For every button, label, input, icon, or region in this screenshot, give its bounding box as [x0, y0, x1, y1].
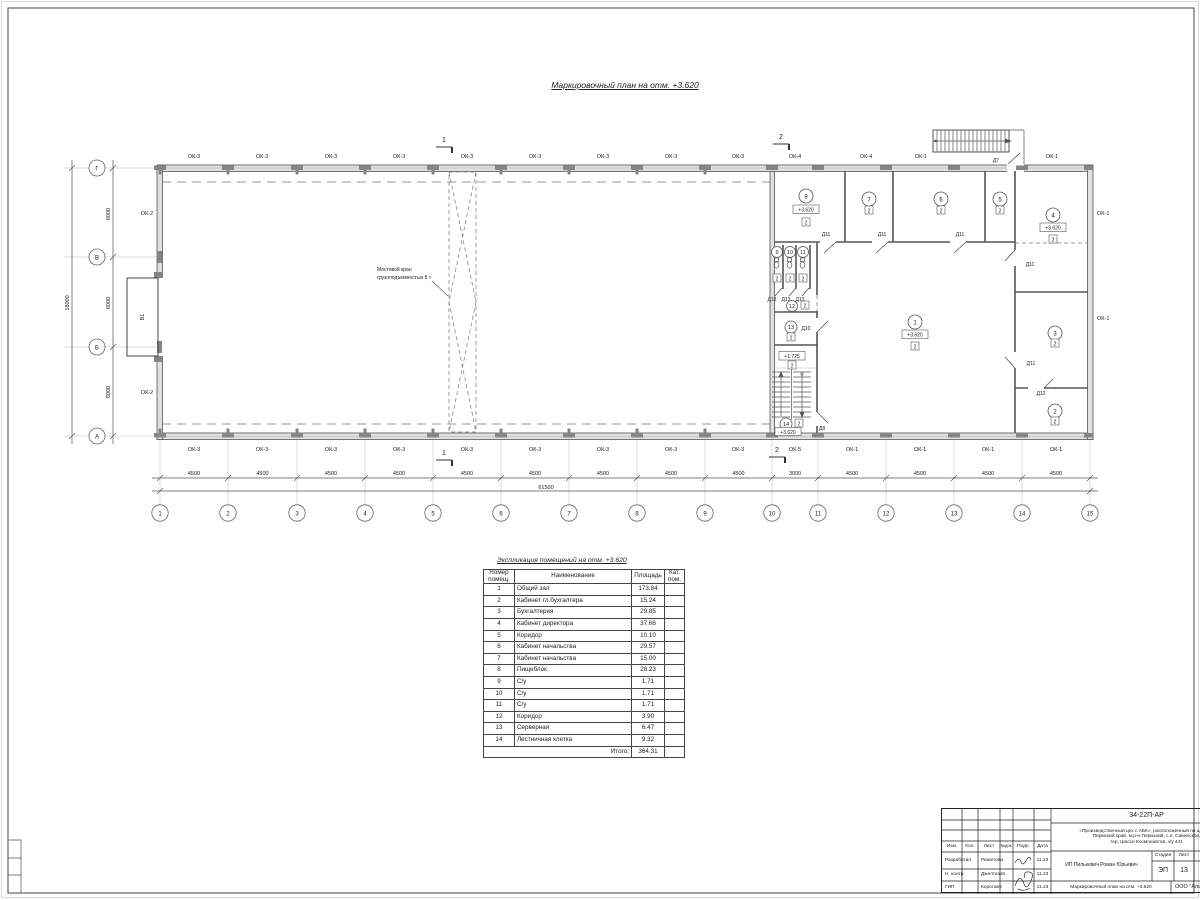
- name-developed: Решетова: [979, 852, 1012, 869]
- door-label-d8: Д8: [819, 426, 825, 432]
- table-row: 11 С/у 1.71: [484, 700, 685, 712]
- cell-cat: [665, 619, 685, 631]
- cell-area: 15.00: [632, 653, 665, 665]
- dim-label: 4500: [597, 471, 609, 477]
- table-row: 3 Бухгалтерия 29.85: [484, 607, 685, 619]
- cell-num: 6: [484, 642, 515, 654]
- window-label: ОК-1: [914, 447, 926, 453]
- col-ndok: №док.: [1000, 841, 1013, 852]
- dim-total-label: 61500: [538, 485, 553, 491]
- window-label: ОК-3: [597, 154, 609, 160]
- date-developed: 11.23: [1034, 852, 1051, 869]
- cell-name: Пищеблок: [515, 665, 632, 677]
- cell-num: 4: [484, 619, 515, 631]
- cell-name: Кабинет директора: [515, 619, 632, 631]
- room-number: 12: [789, 304, 795, 310]
- cell-name: С/у: [515, 688, 632, 700]
- role-ncontrol: Н. контр.: [943, 869, 978, 881]
- window-label: ОК-3: [461, 447, 473, 453]
- grid-col-label: 13: [951, 512, 958, 518]
- table-row: 4 Кабинет директора 37.66: [484, 619, 685, 631]
- cell-area: 1.71: [632, 688, 665, 700]
- window-label: ОК-1: [1046, 154, 1058, 160]
- window-label: ОК-1: [982, 447, 994, 453]
- window-label: ОК-3: [188, 447, 200, 453]
- table-row: 8 Пищеблок 28.23: [484, 665, 685, 677]
- cell-cat: [665, 688, 685, 700]
- category-mark: 2: [804, 304, 807, 310]
- drawing-sheet: Маркировочный план на отм. +3.620 450045…: [0, 0, 1200, 900]
- cell-cat: [665, 630, 685, 642]
- door-label-d10: Д10: [802, 326, 811, 332]
- cell-name: Кабинет начальства: [515, 642, 632, 654]
- cell-name: Кабинет начальства: [515, 653, 632, 665]
- dim-label: 6000: [106, 208, 112, 220]
- table-row: 12 Коридор 3.90: [484, 711, 685, 723]
- explication-title: Экспликация помещений на отм. +3.620: [497, 557, 685, 564]
- col-list: Лист: [978, 841, 1000, 852]
- name-ncontrol: Джелтазов: [979, 869, 1012, 881]
- room-number: 14: [783, 422, 789, 428]
- room-number: 9: [775, 250, 778, 256]
- level-mark: +3.620: [780, 430, 796, 436]
- cell-num: 5: [484, 630, 515, 642]
- window-label: ОК-3: [529, 447, 541, 453]
- explication-table: Номер помещ. Наименование Площадь Кат. п…: [483, 569, 685, 758]
- explication: Экспликация помещений на отм. +3.620 Ном…: [483, 557, 685, 758]
- cell-num: 7: [484, 653, 515, 665]
- window-label: ОК-3: [732, 447, 744, 453]
- table-row: 1 Общий зал 173.84: [484, 584, 685, 596]
- signature: [1015, 857, 1031, 864]
- cell-num: 12: [484, 711, 515, 723]
- cell-cat: [665, 584, 685, 596]
- cell-num: 11: [484, 700, 515, 712]
- window-labels-right: ОК-1ОК-1: [1097, 211, 1109, 322]
- category-mark: 2: [1054, 342, 1057, 348]
- cell-num: 3: [484, 607, 515, 619]
- door-label-d13: Д13: [768, 297, 777, 303]
- col-header-name: Наименование: [515, 570, 632, 584]
- section-mark-2: 2: [775, 447, 779, 454]
- door-label-d11: Д11: [956, 232, 965, 238]
- col-izm: Изм.: [942, 841, 962, 852]
- client-name: ИП Пилькевич Роман Юрьевич: [1051, 851, 1152, 881]
- cell-cat: [665, 700, 685, 712]
- grid-col-label: 11: [815, 512, 822, 518]
- cell-num: 1: [484, 584, 515, 596]
- room-number: 11: [800, 250, 806, 256]
- window-label: ОК-1: [846, 447, 858, 453]
- date-ncontrol: 11.23: [1034, 869, 1051, 881]
- window-label: ОК-3: [665, 447, 677, 453]
- door-label-d12: Д12: [1037, 391, 1046, 397]
- dim-label: 4500: [914, 471, 926, 477]
- category-mark: 2: [914, 345, 917, 351]
- table-total-row: Итого: 364.31: [484, 746, 685, 758]
- dim-label: 3000: [789, 471, 801, 477]
- category-mark: 2: [791, 364, 794, 370]
- cell-name: Бухгалтерия: [515, 607, 632, 619]
- cell-num: 2: [484, 595, 515, 607]
- cell-cat: [665, 642, 685, 654]
- door-label-d11: Д11: [822, 232, 831, 238]
- cell-name: Общий зал: [515, 584, 632, 596]
- cell-area: 6.47: [632, 723, 665, 735]
- category-mark: 2: [805, 221, 808, 227]
- grid-row-labels: ГВБА: [95, 167, 99, 441]
- col-header-cat: Кат. пом.: [665, 570, 685, 584]
- window-labels-left: ОК-2ОК-2: [141, 211, 153, 396]
- table-header-row: Номер помещ. Наименование Площадь Кат. п…: [484, 570, 685, 584]
- crane-note-line2: грузоподъемностью 5 т: [377, 275, 432, 281]
- cell-name: С/у: [515, 700, 632, 712]
- section-mark-1: 1: [442, 137, 446, 144]
- window-label: ОК-3: [732, 154, 744, 160]
- window-label: ОК-3: [256, 154, 268, 160]
- grid-lines: [64, 168, 1090, 505]
- date-gip: 11.23: [1034, 881, 1051, 894]
- cell-name: Коридор: [515, 711, 632, 723]
- cell-area: 28.23: [632, 665, 665, 677]
- window-label: ОК-3: [188, 154, 200, 160]
- window-label: ОК-3: [461, 154, 473, 160]
- cell-name: Серверная: [515, 723, 632, 735]
- col-kol: Кол.: [962, 841, 978, 852]
- sheet-value: 13: [1174, 861, 1194, 881]
- door-label-d11: Д11: [1026, 262, 1035, 268]
- col-header-area: Площадь: [632, 570, 665, 584]
- cell-cat: [665, 607, 685, 619]
- window-label: ОК-3: [393, 154, 405, 160]
- sheet-title: Маркировочный план на отм. +3.620: [1051, 881, 1171, 894]
- level-mark: +3.620: [798, 208, 814, 214]
- internal-stair: [772, 368, 817, 420]
- grid-row-label: В: [95, 256, 99, 262]
- window-label: ОК-1: [1050, 447, 1062, 453]
- room-number: 13: [788, 325, 794, 331]
- dim-label: 4500: [529, 471, 541, 477]
- window-label: ОК-2: [141, 390, 153, 396]
- col-data: Дата: [1034, 841, 1051, 852]
- cell-num: 13: [484, 723, 515, 735]
- dim-label: 4500: [393, 471, 405, 477]
- category-mark: 2: [776, 277, 779, 283]
- section-mark-1: 1: [442, 450, 446, 457]
- cell-num: 10: [484, 688, 515, 700]
- floor-plan: 4500450045004500450045004500450045003000…: [0, 0, 1200, 900]
- cell-cat: [665, 723, 685, 735]
- cell-cat: [665, 665, 685, 677]
- dim-label: 4500: [256, 471, 268, 477]
- grid-row-label: Б: [95, 346, 99, 352]
- cell-cat: [665, 711, 685, 723]
- stage-value: ЭП: [1152, 861, 1174, 881]
- col-header-num: Номер помещ.: [484, 570, 515, 584]
- cell-area: 10.10: [632, 630, 665, 642]
- category-mark: 2: [1054, 420, 1057, 426]
- external-stair: [933, 130, 1024, 164]
- role-gip: ГИП: [943, 881, 978, 894]
- walls: [156, 164, 1093, 440]
- stage-label: Стадия: [1152, 851, 1174, 861]
- dim-label: 4500: [732, 471, 744, 477]
- table-row: 5 Коридор 10.10: [484, 630, 685, 642]
- cell-cat: [665, 595, 685, 607]
- room-number: 10: [787, 250, 793, 256]
- dim-label: 4500: [325, 471, 337, 477]
- dim-labels-bottom: 4500450045004500450045004500450045003000…: [188, 471, 1062, 477]
- dim-label: 4500: [461, 471, 473, 477]
- dim-label: 6000: [106, 297, 112, 309]
- cell-area: 9.32: [632, 734, 665, 746]
- door-label-d7: Д7: [993, 158, 999, 164]
- dim-label: 4500: [982, 471, 994, 477]
- dim-label: 4500: [846, 471, 858, 477]
- cell-num: 9: [484, 676, 515, 688]
- grid-bubbles-left: [89, 160, 105, 444]
- section-mark-2: 2: [779, 134, 783, 141]
- grid-col-label: 15: [1087, 512, 1094, 518]
- cell-area: 173.84: [632, 584, 665, 596]
- cell-name: Лестничная клетка: [515, 734, 632, 746]
- total-label: Итого:: [484, 746, 632, 758]
- category-mark: 2: [868, 209, 871, 215]
- window-label: ОК-3: [665, 154, 677, 160]
- level-mark: +3.620: [1045, 226, 1061, 232]
- cell-name: С/у: [515, 676, 632, 688]
- columns: [154, 166, 1093, 438]
- cell-area: 15.24: [632, 595, 665, 607]
- cell-area: 1.71: [632, 700, 665, 712]
- window-label: ОК-1: [1097, 211, 1109, 217]
- table-row: 2 Кабинет гл.бухгалтера 15.24: [484, 595, 685, 607]
- dim-label: 4500: [665, 471, 677, 477]
- doc-number: 34-22П-АР: [1051, 809, 1200, 823]
- cell-name: Коридор: [515, 630, 632, 642]
- dim-label: 6000: [106, 386, 112, 398]
- window-label: ОК-2: [141, 211, 153, 217]
- grid-col-label: 14: [1019, 512, 1026, 518]
- org-name: ООО "Аль: [1171, 881, 1200, 894]
- name-gip: Коротаев: [979, 881, 1012, 894]
- grid-col-label: 12: [883, 512, 890, 518]
- gate-v1: В1: [127, 278, 158, 356]
- table-row: 9 С/у 1.71: [484, 676, 685, 688]
- category-mark: 2: [802, 277, 805, 283]
- level-mark: +1.725: [784, 354, 800, 360]
- grid-col-label: 10: [769, 512, 776, 518]
- table-row: 10 С/у 1.71: [484, 688, 685, 700]
- table-row: 7 Кабинет начальства 15.00: [484, 653, 685, 665]
- cell-area: 29.85: [632, 607, 665, 619]
- toilet-fixtures: [774, 258, 805, 268]
- door-label-d11: Д11: [1027, 361, 1036, 367]
- side-stamp: [8, 840, 21, 893]
- window-label: ОК-3: [256, 447, 268, 453]
- dim-label: 4500: [1050, 471, 1062, 477]
- crane-note-line1: Мостовой кран: [377, 266, 412, 273]
- cell-cat: [665, 676, 685, 688]
- cell-area: 1.71: [632, 676, 665, 688]
- col-podp: Подп.: [1013, 841, 1034, 852]
- role-developed: Разработал: [943, 852, 978, 869]
- cell-area: 37.66: [632, 619, 665, 631]
- window-label: ОК-3: [325, 447, 337, 453]
- category-mark: 2: [940, 209, 943, 215]
- window-label: ОК-3: [325, 154, 337, 160]
- category-mark: 2: [999, 209, 1002, 215]
- dim-total-left-label: 18000: [65, 295, 71, 310]
- cell-cat: [665, 653, 685, 665]
- table-row: 6 Кабинет начальства 29.57: [484, 642, 685, 654]
- window-labels-top: ОК-3ОК-3ОК-3ОК-3ОК-3ОК-3ОК-3ОК-3ОК-3ОК-4…: [188, 154, 1058, 160]
- window-label: ОК-1: [915, 154, 927, 160]
- cell-num: 14: [484, 734, 515, 746]
- title-block: 34-22П-АР «Производственный цех с АБК», …: [941, 808, 1200, 893]
- gate-label: В1: [140, 314, 146, 321]
- grid-row-label: А: [95, 435, 99, 441]
- section-marks: 1 1 2 2: [436, 134, 789, 466]
- table-row: 14 Лестничная клетка 9.32: [484, 734, 685, 746]
- window-label: ОК-4: [789, 154, 801, 160]
- category-mark: 2: [1052, 238, 1055, 244]
- cell-cat: [665, 734, 685, 746]
- project-line3: тер. Шоссе Космонавтов, з/у 441: [1110, 840, 1183, 845]
- crane: Мостовой кран грузоподъемностью 5 т: [162, 172, 770, 432]
- category-mark: 2: [798, 422, 801, 428]
- window-label: ОК-4: [860, 154, 872, 160]
- dim-labels-left: 600060006000: [106, 208, 112, 398]
- sheet-label: Лист: [1174, 851, 1194, 861]
- window-label: ОК-3: [529, 154, 541, 160]
- window-labels-bottom: ОК-3ОК-3ОК-3ОК-3ОК-3ОК-3ОК-3ОК-3ОК-3ОК-5…: [188, 447, 1062, 453]
- cell-num: 8: [484, 665, 515, 677]
- crane-note-leader: [432, 281, 448, 296]
- dim-label: 4500: [188, 471, 200, 477]
- table-row: 13 Серверная 6.47: [484, 723, 685, 735]
- category-mark: 2: [790, 336, 793, 342]
- window-label: ОК-1: [1097, 316, 1109, 322]
- category-mark: 2: [789, 277, 792, 283]
- window-label: ОК-3: [597, 447, 609, 453]
- cell-area: 3.90: [632, 711, 665, 723]
- door-label-d11: Д11: [878, 232, 887, 238]
- total-value: 364.31: [632, 746, 665, 758]
- level-mark: +3.620: [907, 333, 923, 339]
- window-label: ОК-5: [789, 447, 801, 453]
- cell-name: Кабинет гл.бухгалтера: [515, 595, 632, 607]
- cell-area: 29.57: [632, 642, 665, 654]
- window-label: ОК-3: [393, 447, 405, 453]
